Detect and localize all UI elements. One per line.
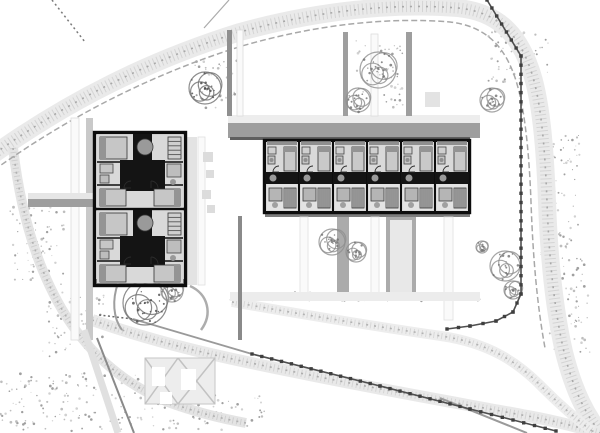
speckle-dot [121,428,123,430]
speckle-dot [511,51,513,53]
speckle-dot [578,317,579,318]
fence-south-post [309,367,312,370]
room-or-furniture [403,141,433,145]
speckle-dot [118,419,120,421]
speckle-dot [491,78,492,79]
speckle-dot [394,86,397,89]
tree-dot [505,267,507,269]
speckle-dot [144,408,145,409]
speckle-dot [42,250,44,252]
speckle-dot [23,406,24,407]
tree-dot [150,311,152,313]
top-spur-line [204,0,229,28]
speckle-dot [162,428,164,430]
tree-dot [491,98,493,100]
speckle-dot [254,398,255,399]
room-or-furniture [100,240,113,249]
speckle-dot [589,351,590,352]
speckle-dot [555,180,556,181]
speckle-dot [40,404,42,406]
speckle-dot [54,332,56,334]
speckle-dot [196,94,198,96]
speckle-dot [1,415,3,417]
speckle-dot [135,375,136,376]
tree-dot [505,265,507,267]
room-or-furniture [336,147,344,154]
tree-dot [149,320,151,322]
room-or-furniture [100,265,106,282]
fence-south-post [250,352,253,355]
tree-dot [211,85,212,86]
speckle-dot [64,414,67,417]
speckle-dot [48,377,50,379]
speckle-dot [554,157,556,159]
speckle-dot [563,266,564,267]
tree-dot [159,300,160,301]
speckle-dot [541,47,542,48]
tree-dot [347,250,349,252]
speckle-dot [258,416,260,418]
speckle-dot [492,76,494,78]
tree-dot [382,69,384,71]
speckle-dot [173,420,175,422]
speckle-dot [563,163,564,164]
room-or-furniture [335,141,365,145]
speckle-dot [549,332,551,334]
speckle-dot [36,395,37,396]
speckle-dot [571,139,574,142]
tree-dot [209,90,211,92]
fence-east-post [519,128,522,131]
speckle-dot [99,426,101,428]
fence-east-post [519,137,522,140]
speckle-dot [570,288,571,289]
speckle-dot [228,401,229,402]
speckle-dot [519,78,521,80]
tree-dot [329,237,331,239]
fence-south-post [270,357,273,360]
tree-dot [383,53,385,55]
speckle-dot [22,279,23,280]
speckle-dot [534,34,536,36]
speckle-dot [140,418,142,420]
speckle-dot [51,255,52,256]
tree-dot [328,239,330,241]
tree-dot [517,264,520,267]
fence-east-post [519,192,522,195]
speckle-dot [356,70,358,72]
speckle-dot [575,145,576,146]
speckle-dot [83,372,85,374]
furniture-round [440,158,444,162]
speckle-dot [27,252,28,253]
speckle-dot [41,245,42,246]
tree-dot [375,66,377,68]
speckle-dot [48,321,50,323]
speckle-dot [33,208,34,209]
furniture-round [137,215,153,231]
speckle-dot [576,296,577,297]
fence-south-post [428,397,431,400]
tree [490,251,521,281]
room-or-furniture [100,175,109,183]
speckle-dot [52,327,53,328]
fence-east-post [511,310,514,313]
furniture-round [440,175,447,182]
speckle-dot [14,254,16,256]
speckle-dot [362,91,363,92]
speckle-dot [19,401,21,403]
speckle-dot [52,420,53,421]
room-or-furniture [438,147,446,154]
speckle-dot [197,428,199,430]
speckle-dot [574,325,577,328]
speckle-dot [231,407,233,409]
tree-dot [489,102,491,104]
speckle-dot [78,417,80,419]
speckle-dot [28,383,29,384]
speckle-dot [65,348,66,349]
speckle-dot [65,381,68,384]
furniture-round [372,158,376,162]
fence-east-post [519,173,522,176]
tree-dot [335,241,337,243]
speckle-dot [28,260,29,261]
speckle-dot [558,192,560,194]
tree-dot [213,90,214,91]
path-vertical-1 [237,30,243,116]
speckle-dot [49,385,52,388]
speckle-dot [388,48,390,50]
fence-south-post [300,365,303,368]
speckle-dot [22,423,25,426]
tree-dot [350,106,353,109]
fence-east-post [503,315,506,318]
tree-dot [516,297,517,298]
room-or-furniture [167,164,181,177]
speckle-dot [258,395,260,397]
fence-south-post [479,410,482,413]
speckle-dot [218,63,220,65]
tree-dot [493,104,495,106]
speckle-dot [62,380,64,382]
speckle-dot [15,420,18,423]
speckle-dot [578,135,579,136]
fence-east-post [505,30,508,33]
speckle-dot [386,101,388,103]
speckle-dot [52,383,54,385]
speckle-dot [123,396,125,398]
speckle-dot [581,280,582,281]
speckle-dot [68,375,71,378]
speckle-dot [10,210,11,211]
speckle-dot [61,291,63,293]
tree-dot [324,241,326,243]
fence-east-post [519,54,522,57]
tree-dot [356,250,358,252]
speckle-dot [56,245,57,246]
speckle-dot [28,271,29,272]
speckle-dot [212,67,214,69]
room-or-furniture [318,147,330,152]
speckle-dot [101,336,104,339]
speckle-dot [102,303,104,305]
room-or-furniture [174,265,180,282]
speckle-dot [103,295,105,297]
fence-south-post [544,427,547,430]
fence-south-post [349,377,352,380]
speckle-dot [583,285,586,288]
path-south-1 [300,217,308,297]
speckle-dot [383,94,385,96]
tree-dot [171,290,173,292]
tree-dot [354,241,356,243]
pad-2 [206,170,214,178]
furniture-round [270,175,277,182]
tree [480,88,505,112]
fence-east-post [515,301,518,304]
furniture-round [306,202,312,208]
speckle-dot [45,241,47,243]
speckle-dot [561,193,562,194]
tree-dot [155,310,157,312]
tree-dot [336,238,338,240]
speckle-dot [10,410,12,412]
speckle-dot [103,297,104,298]
room-or-furniture [167,240,181,253]
speckle-dot [151,408,153,410]
speckle-dot [576,287,577,288]
speckle-dot [570,161,572,163]
speckle-dot [563,147,564,148]
furniture-round [272,202,278,208]
furniture-round [304,175,311,182]
tree-dot [154,321,155,322]
room-or-furniture [370,147,378,154]
speckle-dot [221,402,223,404]
speckle-dot [205,67,207,69]
speckle-dot [399,94,401,96]
fence-south-post [438,400,441,403]
furniture-round [170,255,176,261]
strip-west [86,118,93,340]
speckle-dot [32,421,33,422]
speckle-dot [30,278,33,281]
speckle-dot [576,258,577,259]
speckle-dot [356,40,357,41]
speckle-dot [399,46,401,48]
tree-dot [140,303,142,305]
speckle-dot [392,67,394,69]
speckle-dot [583,263,586,266]
pad-3 [202,190,211,199]
fence-east-post [519,274,522,277]
tree-dot [484,248,485,249]
speckle-dot [50,245,52,247]
speckle-dot [257,398,258,399]
speckle-dot [358,51,360,53]
fence-east-post [519,247,522,250]
tree-dot [170,297,172,299]
fence-east-post [468,324,471,327]
speckle-dot [55,416,57,418]
speckle-dot [572,274,575,277]
speckle-dot [30,392,31,393]
speckle-dot [25,420,27,422]
speckle-dot [57,335,59,337]
speckle-dot [567,160,568,161]
tree-dot [321,234,323,236]
speckle-dot [560,245,563,248]
speckle-dot [580,321,582,323]
tree-dot [132,298,133,299]
speckle-dot [578,143,580,145]
room-or-furniture [420,147,432,152]
room-or-furniture [439,188,452,201]
speckle-dot [19,372,22,375]
speckle-dot [557,209,559,211]
speckle-dot [260,411,262,413]
speckle-dot [46,231,48,233]
fence-east-post [519,228,522,231]
parking-hole [160,392,172,404]
tree-dot [512,289,514,291]
speckle-dot [564,173,566,175]
tree-dot [334,234,336,236]
room-or-furniture [386,147,398,152]
fence-south-post [522,421,525,424]
speckle-dot [60,335,61,336]
speckle-dot [137,378,140,381]
fence-south-post [378,384,381,387]
speckle-dot [177,422,180,425]
tree-dot [212,96,214,98]
speckle-dot [221,99,224,102]
room-or-furniture [100,213,106,235]
room-or-furniture [284,147,296,152]
speckle-dot [50,229,52,231]
speckle-dot [13,403,14,404]
speckle-dot [14,262,15,263]
speckle-dot [168,427,171,430]
speckle-dot [75,407,78,410]
tree-dot [505,261,506,262]
path-west [71,118,79,340]
speckle-dot [48,211,49,212]
speckle-dot [69,344,70,345]
room-or-furniture [100,251,109,259]
room-or-furniture [303,188,316,201]
furniture-round [372,175,379,182]
speckle-dot [379,45,381,47]
speckle-dot [573,290,576,293]
tree-dot [357,111,360,114]
tree-dot [359,108,361,110]
fence-south-post [501,416,504,419]
fence-east-post [519,100,522,103]
tree-dot [499,254,501,256]
tree-dot [193,96,195,98]
tree-hook-east [190,286,208,330]
speckle-dot [49,226,50,227]
speckle-dot [82,323,84,325]
room-or-furniture [168,213,181,235]
fence-south-post [511,418,514,421]
room-or-furniture [352,147,364,152]
speckle-dot [251,419,254,422]
speckle-dot [576,300,578,302]
speckle-dot [94,412,96,414]
speckle-dot [129,416,131,418]
fence-south-post [329,372,332,375]
speckle-dot [42,351,43,352]
tree-dot [331,240,334,243]
speckle-dot [153,425,154,426]
speckle-dot [488,80,490,82]
tree-dot [351,101,353,103]
speckle-dot [559,232,560,233]
tree-dot [336,245,338,247]
speckle-dot [47,226,49,228]
speckle-dot [235,406,237,408]
tree-dot [385,68,386,69]
speckle-dot [14,279,16,281]
apartment-block-west [94,132,186,286]
speckle-dot [246,425,248,427]
fence-east-post [519,73,522,76]
tree [189,72,222,104]
speckle-dot [563,273,565,275]
speckle-dot [204,420,206,422]
speckle-dot [220,65,221,66]
tree-dot [348,99,350,101]
fence-south-post [408,392,411,395]
furniture-round [137,139,153,155]
speckle-dot [33,423,36,426]
speckle-dot [547,72,548,73]
tree-dot [481,97,483,99]
tree-dot [178,292,179,293]
room-or-furniture [100,137,106,159]
fence-south-post [458,405,461,408]
speckle-dot [490,58,492,60]
speckle-dot [55,211,58,214]
tree-dot [509,297,510,298]
fence-east-post [519,155,522,158]
speckle-dot [580,341,583,344]
furniture-round [338,158,342,162]
speckle-dot [21,411,23,413]
speckle-dot [565,246,567,248]
speckle-dot [19,223,21,225]
speckle-dot [22,429,24,431]
speckle-dot [539,47,541,49]
fence-east-post [519,283,522,286]
speckle-dot [24,386,26,388]
speckle-dot [26,243,27,244]
speckle-dot [98,299,101,302]
speckle-dot [198,65,201,68]
speckle-dot [574,149,576,151]
tree-dot [141,291,142,292]
furniture-round [270,158,274,162]
tree-dot [515,288,517,290]
speckle-dot [572,169,573,170]
speckle-dot [54,262,56,264]
speckle-dot [205,69,206,70]
speckle-dot [578,154,580,156]
speckle-dot [139,397,142,400]
